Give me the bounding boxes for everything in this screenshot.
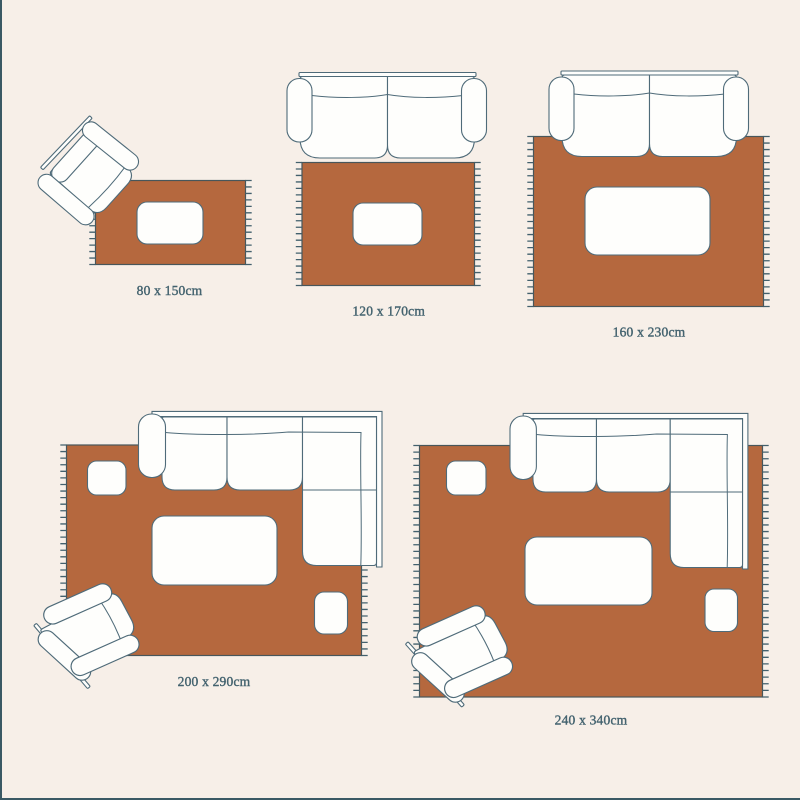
svg-text:80 x 150cm: 80 x 150cm [137,283,203,298]
svg-text:200 x 290cm: 200 x 290cm [178,674,251,689]
svg-text:160 x 230cm: 160 x 230cm [613,324,686,339]
svg-text:240 x 340cm: 240 x 340cm [555,713,628,728]
svg-text:120 x 170cm: 120 x 170cm [352,303,425,318]
